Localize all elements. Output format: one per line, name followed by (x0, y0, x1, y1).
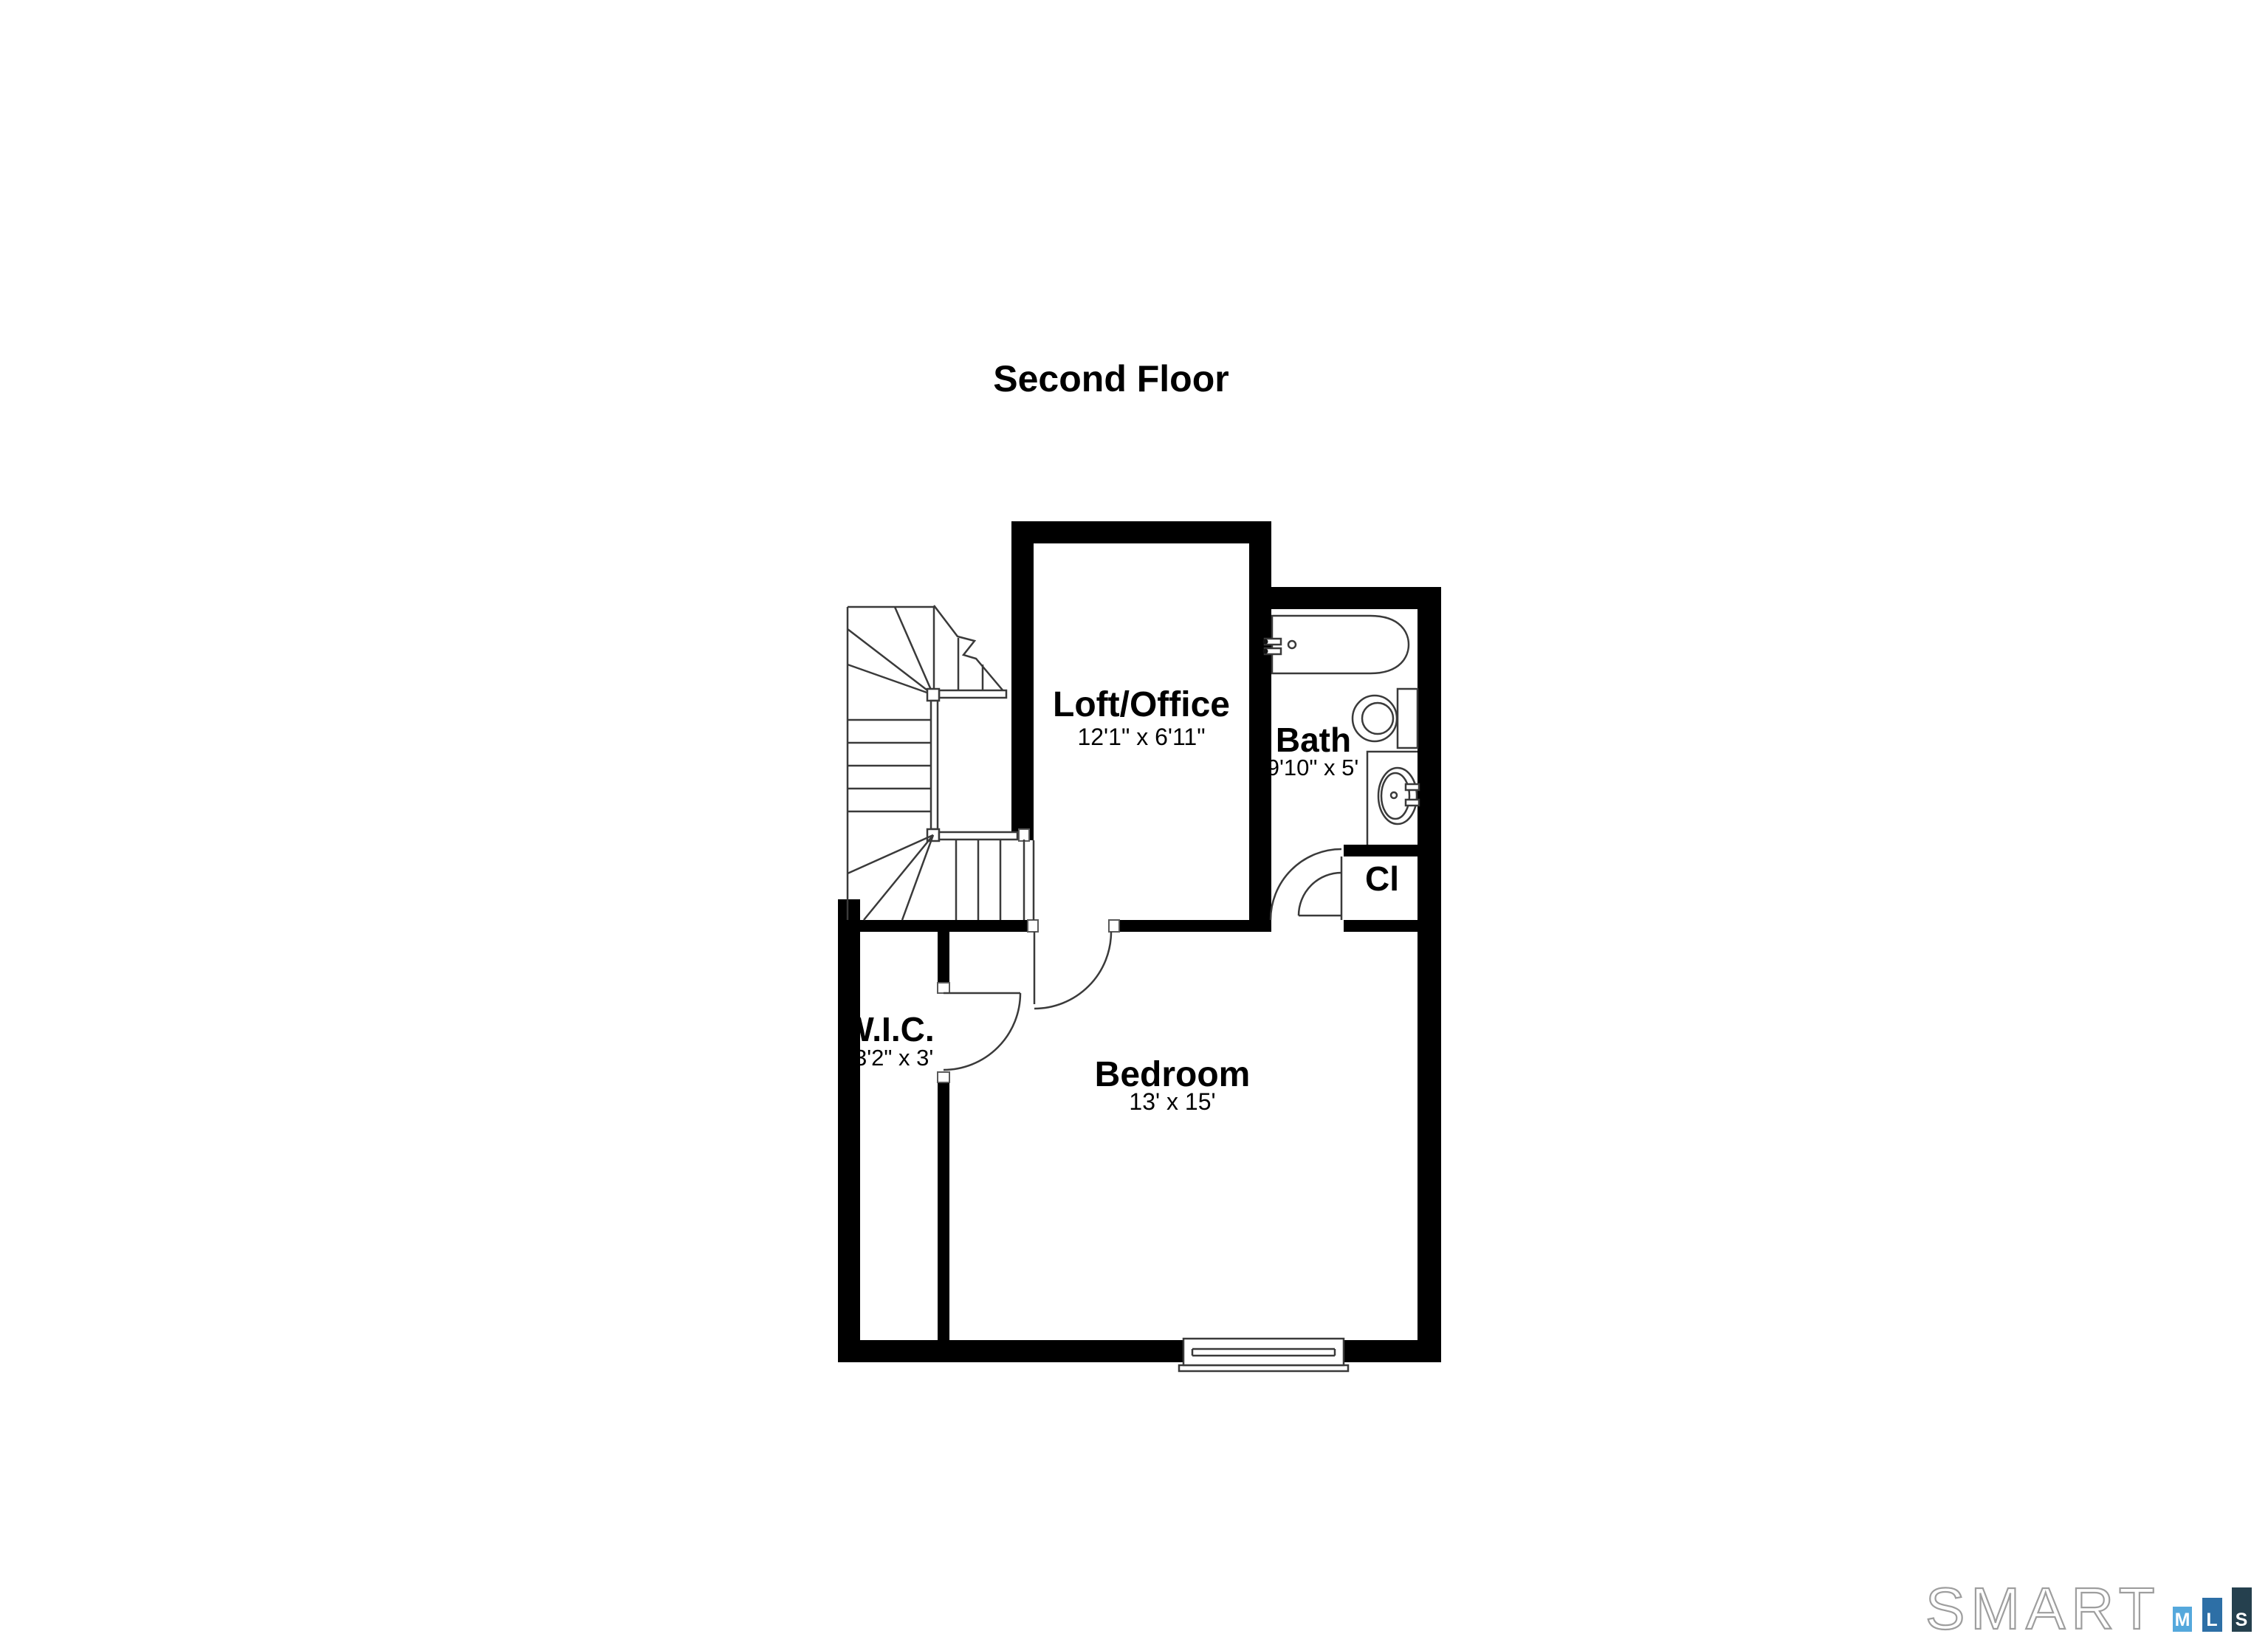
room-dims-loft: 12'1" x 6'11" (1077, 724, 1205, 750)
page-title: Second Floor (993, 358, 1228, 399)
room-dims-wic: 13'2" x 3' (842, 1045, 934, 1071)
room-label-closet: Cl (1365, 859, 1399, 898)
wall-wic-bedroom-lower (938, 1082, 949, 1340)
floorplan-page: Second Floor Loft/Office 12'1" x 6'11" B… (0, 0, 2268, 1648)
tub-faucet-dot-1 (1263, 639, 1268, 645)
staircase-icon (848, 605, 1034, 920)
stair-upper-rail-bar (939, 690, 1006, 698)
wic-door-jamb-bottom (938, 1072, 949, 1082)
wall-closet-bottom (1344, 920, 1417, 932)
stair-break-line (934, 605, 1004, 692)
room-label-bath: Bath (1276, 721, 1351, 759)
wall-bath-top (1249, 587, 1441, 609)
closet-door-arc (1299, 873, 1341, 916)
wall-loft-right (1249, 521, 1271, 932)
wic-door-jamb-top (938, 983, 949, 993)
door-swings (944, 849, 1341, 1070)
wall-exterior-left (838, 899, 860, 1362)
stair-upper-newel (927, 689, 939, 701)
sink-faucet-stub-1 (1406, 784, 1419, 790)
wall-stairs-wic (838, 920, 1028, 932)
stair-upper-winder-1 (895, 607, 933, 695)
sink-faucet-stub-2 (1406, 800, 1419, 806)
loft-door-arc (1034, 932, 1111, 1009)
loft-door-jamb-right (1109, 920, 1119, 932)
labels: Second Floor Loft/Office 12'1" x 6'11" B… (842, 358, 1399, 1115)
logo-bar-letter-s: S (2236, 1610, 2248, 1630)
bedroom-window-icon (1179, 1339, 1348, 1371)
stair-lower-rail-bar (939, 832, 1017, 840)
wall-closet-top (1344, 845, 1417, 856)
smartmls-brand-text: SMART (1925, 1576, 2161, 1641)
logo-bar-letter-m: M (2175, 1610, 2190, 1630)
toilet-tank-icon (1398, 689, 1417, 748)
logo-bar-letter-l: L (2206, 1610, 2217, 1630)
stair-upper-winder-2 (848, 629, 933, 695)
bath-door-arc (1271, 849, 1341, 920)
wall-loft-bottom (1119, 920, 1249, 932)
stair-landing-jamb (1019, 829, 1029, 841)
stair-center-rail (931, 701, 938, 829)
room-dims-bedroom: 13' x 15' (1129, 1088, 1215, 1115)
room-dims-bath: 9'10" x 5' (1267, 755, 1359, 780)
stair-upper-winder-3 (848, 665, 933, 695)
wall-loft-left (1011, 521, 1034, 840)
floor-plan-canvas: Second Floor Loft/Office 12'1" x 6'11" B… (0, 0, 2268, 1648)
wall-exterior-bottom (838, 1340, 1441, 1362)
loft-door-jamb-left (1028, 920, 1038, 932)
wall-exterior-right (1417, 587, 1441, 1362)
wall-wic-bedroom-upper (938, 932, 949, 983)
wic-door-arc (944, 993, 1020, 1070)
door-jambs (938, 829, 1119, 1082)
smartmls-logo: SMART M L S (1925, 1576, 2252, 1641)
stair-lower-winder-2 (864, 835, 933, 920)
wall-loft-top (1011, 521, 1271, 543)
bathtub-icon (1272, 616, 1409, 673)
room-label-wic: W.I.C. (842, 1010, 934, 1048)
tub-faucet-dot-2 (1263, 649, 1268, 654)
room-label-loft: Loft/Office (1053, 685, 1230, 724)
window-frame (1183, 1339, 1344, 1365)
